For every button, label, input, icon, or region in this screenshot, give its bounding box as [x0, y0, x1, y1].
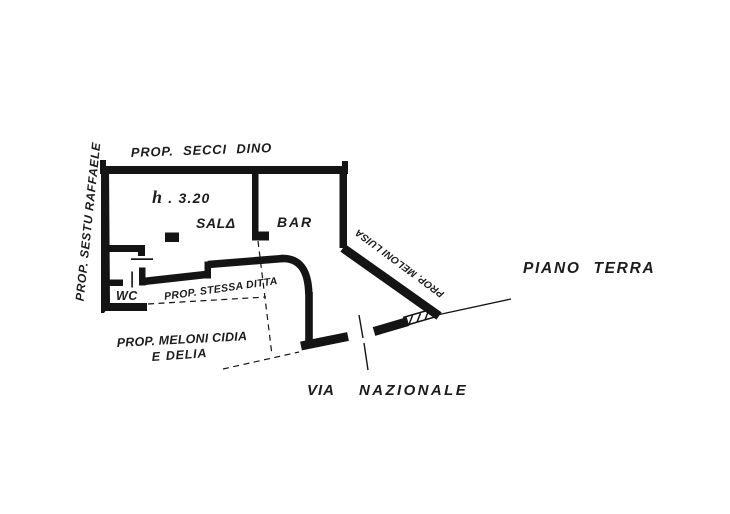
svg-text:VIA: VIA [307, 382, 335, 399]
svg-text:NAZIONALE: NAZIONALE [359, 382, 468, 399]
svg-text:h . 3.20: h . 3.20 [152, 187, 211, 207]
svg-text:PIANO TERRA: PIANO TERRA [523, 260, 655, 277]
svg-text:WC: WC [116, 289, 138, 303]
svg-text:SALΔ: SALΔ [196, 215, 236, 231]
svg-text:BAR: BAR [277, 214, 313, 230]
